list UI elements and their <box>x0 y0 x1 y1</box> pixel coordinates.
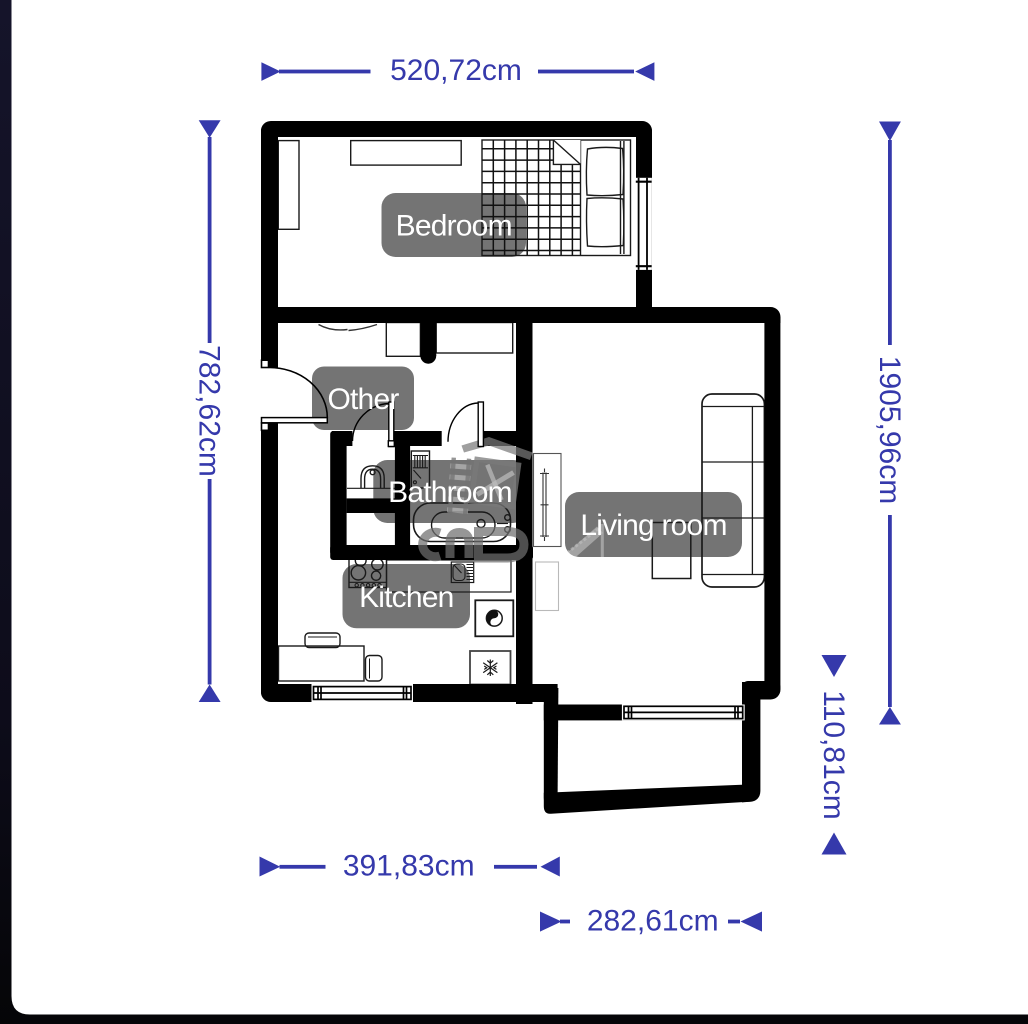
svg-text:Other: Other <box>327 383 399 416</box>
svg-text:Bedroom: Bedroom <box>396 210 512 243</box>
svg-text:Kitchen: Kitchen <box>359 581 453 614</box>
svg-text:Bathroom: Bathroom <box>388 476 512 509</box>
svg-text:520,72cm: 520,72cm <box>390 54 522 87</box>
svg-text:782,62cm: 782,62cm <box>193 345 226 477</box>
svg-text:110,81cm: 110,81cm <box>817 690 850 820</box>
svg-text:Living room: Living room <box>580 509 726 542</box>
svg-text:282,61cm: 282,61cm <box>587 905 719 938</box>
svg-text:1905,96cm: 1905,96cm <box>873 356 906 504</box>
svg-text:391,83cm: 391,83cm <box>343 850 475 883</box>
